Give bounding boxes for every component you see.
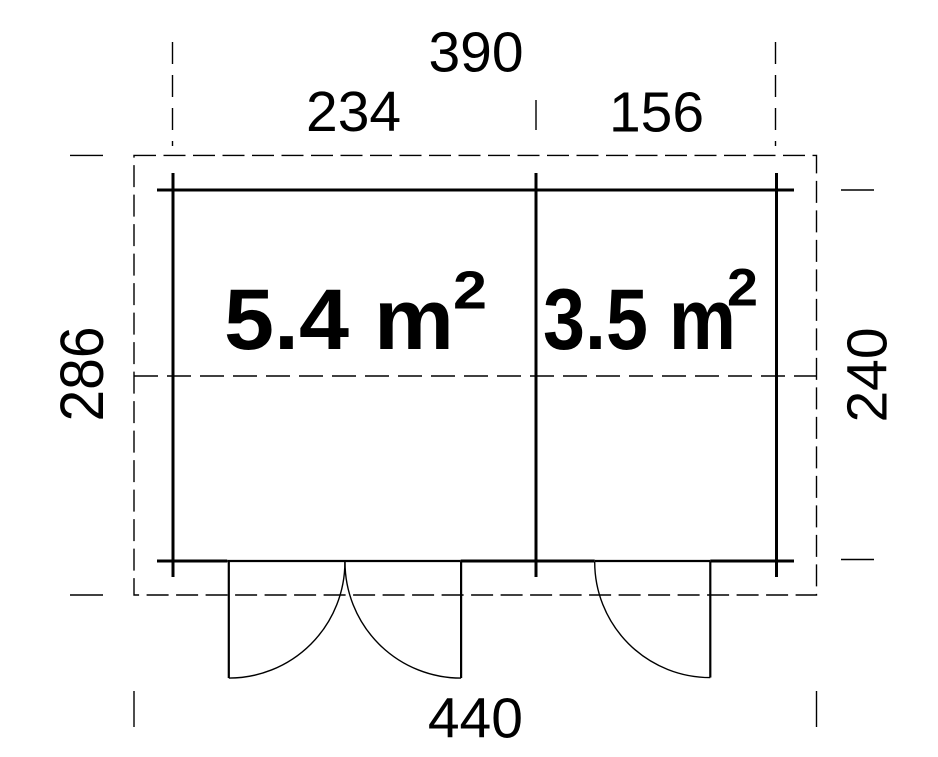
svg-text:2: 2 — [453, 261, 487, 321]
svg-text:156: 156 — [609, 81, 704, 145]
svg-text:286: 286 — [48, 327, 116, 422]
svg-text:5.4 m: 5.4 m — [224, 272, 454, 368]
svg-text:3.5 m: 3.5 m — [543, 272, 736, 368]
svg-text:2: 2 — [727, 259, 758, 318]
svg-text:440: 440 — [428, 687, 523, 751]
svg-text:234: 234 — [306, 80, 401, 144]
svg-text:390: 390 — [428, 21, 523, 85]
svg-text:240: 240 — [836, 327, 900, 422]
